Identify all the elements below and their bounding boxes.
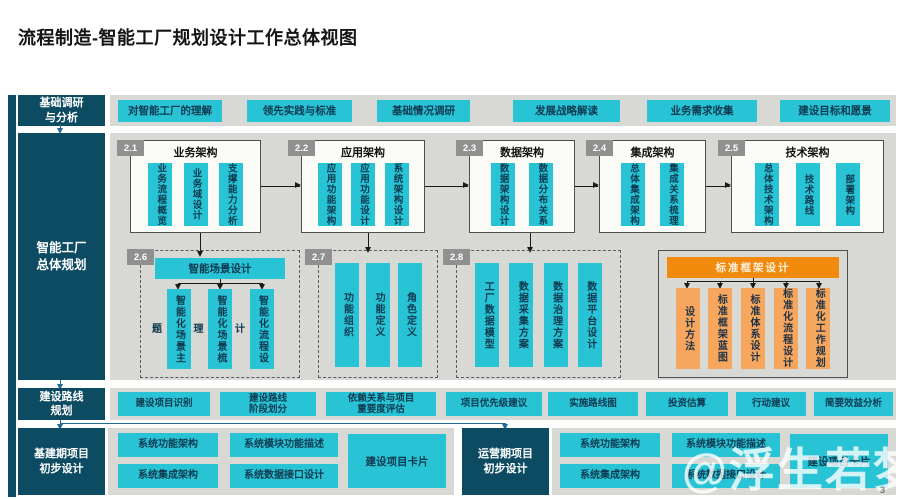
- arch-item: 数据架构设计: [491, 163, 515, 226]
- research-item: 对智能工厂的理解: [118, 100, 222, 122]
- arch-item: 数据分布关系: [529, 163, 553, 226]
- flow-arrow-down: [687, 281, 688, 284]
- arch-box-integration: 2.4 集成架构 总体集成架构 集成关系梳理: [599, 140, 706, 233]
- data-item: 工厂数据模型: [475, 263, 499, 367]
- arch-item: 应用功能架构: [318, 163, 342, 226]
- standard-items: 设计方法 标准框架蓝图 标准体系设计 标准化流程设计 标准化工作规划: [667, 288, 839, 369]
- connector-arrow-research-to-planning: [60, 124, 61, 129]
- research-item: 基础情况调研: [377, 100, 470, 122]
- flow-arrow-down: [720, 281, 721, 284]
- research-item: 建设目标和愿景: [780, 100, 890, 122]
- function-items: 功能组织 功能定义 角色定义: [327, 263, 429, 367]
- left-accent-bar: [8, 95, 16, 497]
- route-item: 建设路线 阶段划分: [220, 392, 316, 416]
- construction-item: 系统数据接口设计: [230, 464, 338, 488]
- flow-line: [688, 281, 820, 282]
- flow-arrow: [706, 186, 730, 187]
- research-item: 业务需求收集: [647, 100, 757, 122]
- flow-arrow: [261, 186, 300, 187]
- standard-item: 标准化流程设计: [774, 288, 798, 369]
- section-label-construction: 基建期项目 初步设计: [18, 428, 105, 495]
- scenario-box-number: 2.6: [127, 249, 154, 265]
- flow-arrow: [425, 186, 468, 187]
- arch-box-items: 总体技术架构 技术路线 部署架构: [738, 163, 877, 226]
- arch-box-technology: 2.5 技术架构 总体技术架构 技术路线 部署架构: [731, 140, 884, 233]
- arch-box-items: 数据架构设计 数据分布关系: [476, 163, 568, 226]
- data-item: 数据平台设计: [578, 263, 602, 367]
- arch-box-number: 2.4: [586, 140, 613, 156]
- construction-item: 系统模块功能描述: [230, 433, 338, 457]
- arch-item: 业务域设计: [184, 163, 208, 226]
- scenario-items: 智能化场景主题 智能化场景梳理 智能化流程设计: [149, 289, 291, 369]
- standard-item: 标准体系设计: [741, 288, 765, 369]
- arch-item: 支撑能力分析: [219, 163, 243, 226]
- arch-box-title: 应用架构: [302, 144, 424, 160]
- route-item: 行动建议: [736, 392, 806, 416]
- construction-item: 系统集成架构: [118, 464, 218, 488]
- flow-arrow-down: [819, 281, 820, 284]
- arch-box-title: 技术架构: [732, 144, 883, 160]
- flow-arrow-down: [178, 283, 179, 285]
- arch-box-items: 总体集成架构 集成关系梳理: [606, 163, 699, 226]
- connector-arrow-route-to-operation: [505, 423, 506, 425]
- research-item: 领先实践与标准: [247, 100, 352, 122]
- page-title: 流程制造-智能工厂规划设计工作总体视图: [18, 24, 358, 50]
- flow-arrow-down: [786, 281, 787, 284]
- operation-item: 系统集成架构: [560, 464, 660, 488]
- arch-item: 集成关系梳理: [660, 163, 684, 226]
- function-item: 功能组织: [335, 263, 359, 367]
- standard-header: 标准框架设计: [667, 257, 839, 278]
- slide: 流程制造-智能工厂规划设计工作总体视图 基础调研 与分析 对智能工厂的理解 领先…: [0, 0, 914, 500]
- route-item: 实施路线图: [548, 392, 638, 416]
- route-item: 建设项目识别: [118, 392, 210, 416]
- data-items: 工厂数据模型 数据采集方案 数据治理方案 数据平台设计: [465, 263, 612, 367]
- route-item: 投资估算: [646, 392, 728, 416]
- arch-box-number: 2.2: [288, 140, 315, 156]
- arch-box-number: 2.3: [456, 140, 483, 156]
- arch-box-number: 2.1: [117, 140, 144, 156]
- function-item: 角色定义: [398, 263, 422, 367]
- connector-arrow-planning-to-route: [60, 380, 61, 385]
- data-item: 数据治理方案: [544, 263, 568, 367]
- section-label-research: 基础调研 与分析: [18, 95, 105, 126]
- standard-box: 标准框架设计 设计方法 标准框架蓝图 标准体系设计 标准化流程设计 标准化工作规…: [658, 250, 848, 378]
- route-item: 简要效益分析: [814, 392, 893, 416]
- arch-item: 总体技术架构: [755, 163, 779, 226]
- route-item: 依赖关系与项目 重要度评估: [326, 392, 436, 416]
- function-item: 功能定义: [366, 263, 390, 367]
- section-label-planning: 智能工厂 总体规划: [18, 133, 105, 380]
- standard-item: 标准化工作规划: [806, 288, 830, 369]
- arch-box-items: 业务流程概览 业务域设计 支撑能力分析: [137, 163, 254, 226]
- construction-item: 系统功能架构: [118, 433, 218, 457]
- flow-arrow-down: [368, 233, 369, 248]
- arch-box-title: 集成架构: [600, 144, 705, 160]
- standard-item: 标准框架蓝图: [708, 288, 732, 369]
- flow-arrow-down: [220, 283, 221, 285]
- connector-line: [61, 423, 506, 424]
- section-label-operation: 运营期项目 初步设计: [462, 428, 549, 495]
- arch-item: 总体集成架构: [621, 163, 645, 226]
- scenario-box: 2.6 智能场景设计 智能化场景主题 智能化场景梳理 智能化流程设计: [140, 250, 300, 378]
- section-label-route: 建设路线 规划: [18, 388, 105, 420]
- flow-arrow: [575, 186, 598, 187]
- flow-arrow-down: [753, 281, 754, 284]
- arch-item: 技术路线: [796, 163, 820, 226]
- page-number: 3: [880, 485, 885, 495]
- research-item: 发展战略解读: [513, 100, 620, 122]
- arch-box-title: 业务架构: [131, 144, 260, 160]
- flow-arrow-down: [262, 283, 263, 285]
- arch-box-application: 2.2 应用架构 应用功能架构 应用功能设计 系统架构设计: [301, 140, 425, 233]
- arch-item: 业务流程概览: [148, 163, 172, 226]
- arch-item: 系统架构设计: [385, 163, 409, 226]
- function-box: 2.7 功能组织 功能定义 角色定义: [318, 250, 438, 378]
- data-item: 数据采集方案: [509, 263, 533, 367]
- arch-box-number: 2.5: [718, 140, 745, 156]
- arch-box-data: 2.3 数据架构 数据架构设计 数据分布关系: [469, 140, 575, 233]
- arch-item: 应用功能设计: [351, 163, 375, 226]
- standard-item: 设计方法: [676, 288, 700, 369]
- route-item: 项目优先级建议: [446, 392, 542, 416]
- arch-box-items: 应用功能架构 应用功能设计 系统架构设计: [308, 163, 418, 226]
- data-box: 2.8 工厂数据模型 数据采集方案 数据治理方案 数据平台设计: [456, 250, 621, 378]
- arch-item: 部署架构: [836, 163, 860, 226]
- scenario-header: 智能场景设计: [155, 258, 285, 279]
- research-strip: [110, 95, 896, 126]
- construction-project-card: 建设项目卡片: [348, 434, 446, 488]
- scenario-item: 智能化流程设计: [250, 289, 274, 369]
- arch-box-business: 2.1 业务架构 业务流程概览 业务域设计 支撑能力分析: [130, 140, 261, 233]
- flow-arrow-down: [530, 233, 531, 248]
- operation-item: 系统功能架构: [560, 433, 660, 457]
- arch-box-title: 数据架构: [470, 144, 574, 160]
